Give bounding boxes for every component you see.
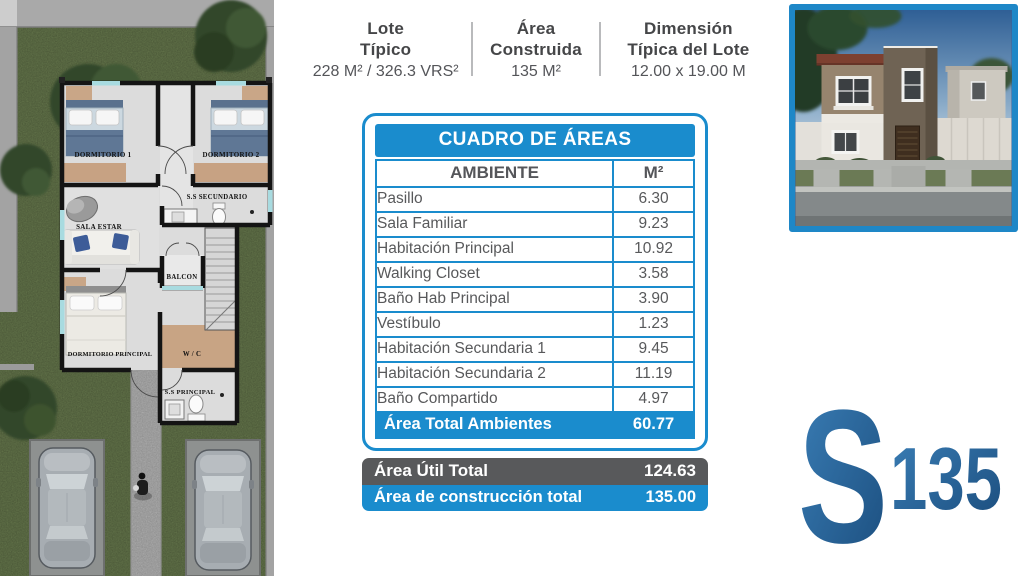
table-total-row: Área Total Ambientes 60.77 — [376, 412, 694, 438]
row-name: Baño Compartido — [376, 387, 613, 412]
area-construccion-total-value: 135.00 — [646, 488, 696, 507]
table-row: Habitación Secundaria 211.19 — [376, 362, 694, 387]
table-row: Baño Compartido4.97 — [376, 387, 694, 412]
table-row: Habitación Secundaria 19.45 — [376, 337, 694, 362]
house-photo — [795, 10, 1012, 226]
room-label-ss-secundario: S.S SECUNDARIO — [187, 194, 248, 201]
summary-bars: Área Útil Total 124.63 Área de construcc… — [362, 458, 708, 511]
house-photo-frame — [789, 4, 1018, 232]
flyer-page: DORMITORIO 1 DORMITORIO 2 S.S SECUNDARIO… — [0, 0, 1024, 576]
spec-title-line: Área — [517, 19, 556, 38]
row-value: 6.30 — [613, 187, 694, 212]
table-row: Pasillo6.30 — [376, 187, 694, 212]
col-header-m2: M² — [613, 160, 694, 187]
bed-dormitorio-2 — [211, 100, 268, 156]
row-value: 3.58 — [613, 262, 694, 287]
spec-lote-tipico: Lote Típico 228 M² / 326.3 VRS² — [300, 16, 471, 82]
row-value: 4.97 — [613, 387, 694, 412]
row-name: Habitación Principal — [376, 237, 613, 262]
row-name: Walking Closet — [376, 262, 613, 287]
area-construccion-total-bar: Área de construcción total 135.00 — [362, 485, 708, 511]
car-top-view — [36, 448, 98, 568]
row-value: 3.90 — [613, 287, 694, 312]
main-house — [817, 46, 938, 166]
room-label-balcon: BALCON — [167, 274, 198, 281]
row-value: 9.23 — [613, 212, 694, 237]
spec-title-line: Típica del Lote — [627, 40, 749, 59]
table-header-row: AMBIENTE M² — [376, 160, 694, 187]
room-label-sala-estar: SALA ESTAR — [76, 223, 123, 231]
stairs — [205, 228, 237, 330]
table-row: Walking Closet3.58 — [376, 262, 694, 287]
row-value: 11.19 — [613, 362, 694, 387]
spec-title-line: Dimensión — [644, 19, 733, 38]
area-construccion-total-label: Área de construcción total — [374, 488, 582, 507]
area-util-total-value: 124.63 — [644, 461, 696, 481]
row-value: 10.92 — [613, 237, 694, 262]
table-row: Sala Familiar9.23 — [376, 212, 694, 237]
room-label-wc: W / C — [183, 351, 201, 358]
row-name: Habitación Secundaria 1 — [376, 337, 613, 362]
total-label: Área Total Ambientes — [376, 412, 613, 438]
spec-title-line: Construida — [490, 40, 582, 59]
bed-dormitorio-1 — [66, 100, 123, 156]
areas-table-title: CUADRO DE ÁREAS — [375, 124, 695, 157]
spec-value: 228 M² / 326.3 VRS² — [300, 62, 471, 82]
logo-number: 135 — [890, 429, 1002, 528]
total-value: 60.77 — [613, 412, 694, 438]
row-value: 9.45 — [613, 337, 694, 362]
floor-plan: DORMITORIO 1 DORMITORIO 2 S.S SECUNDARIO… — [0, 0, 274, 576]
row-name: Sala Familiar — [376, 212, 613, 237]
model-logo-s135: S 135 — [794, 402, 1016, 554]
areas-table: AMBIENTE M² Pasillo6.30 Sala Familiar9.2… — [375, 159, 695, 439]
table-row: Vestíbulo1.23 — [376, 312, 694, 337]
room-label-ss-principal: S.S PRINCIPAL — [165, 389, 216, 396]
room-label-dormitorio-2: DORMITORIO 2 — [203, 151, 260, 159]
spec-header: Lote Típico 228 M² / 326.3 VRS² Área Con… — [300, 16, 776, 82]
room-label-dormitorio-principal: DORMITORIO PRINCIPAL — [68, 351, 153, 358]
bed-principal — [66, 286, 126, 355]
spec-value: 12.00 x 19.00 M — [601, 62, 776, 82]
col-header-ambiente: AMBIENTE — [376, 160, 613, 187]
row-name: Habitación Secundaria 2 — [376, 362, 613, 387]
sofa — [63, 230, 139, 264]
row-name: Vestíbulo — [376, 312, 613, 337]
area-util-total-bar: Área Útil Total 124.63 — [362, 458, 708, 485]
row-name: Baño Hab Principal — [376, 287, 613, 312]
room-label-dormitorio-1: DORMITORIO 1 — [75, 151, 132, 159]
row-value: 1.23 — [613, 312, 694, 337]
spec-dimension-lote: Dimensión Típica del Lote 12.00 x 19.00 … — [601, 16, 776, 82]
car-top-view — [192, 450, 254, 570]
logo-letter: S — [798, 371, 888, 576]
tree — [0, 144, 52, 196]
ground — [796, 160, 1012, 226]
row-name: Pasillo — [376, 187, 613, 212]
floor-plan-drawing: DORMITORIO 1 DORMITORIO 2 S.S SECUNDARIO… — [0, 0, 274, 576]
area-util-total-label: Área Útil Total — [374, 461, 488, 481]
table-row: Habitación Principal10.92 — [376, 237, 694, 262]
spec-title-line: Típico — [360, 40, 411, 59]
spec-value: 135 M² — [473, 62, 598, 82]
table-row: Baño Hab Principal3.90 — [376, 287, 694, 312]
spec-area-construida: Área Construida 135 M² — [473, 16, 598, 82]
areas-table-card: CUADRO DE ÁREAS AMBIENTE M² Pasillo6.30 … — [362, 113, 708, 451]
driveway-path — [131, 370, 161, 576]
spec-title-line: Lote — [367, 19, 404, 38]
